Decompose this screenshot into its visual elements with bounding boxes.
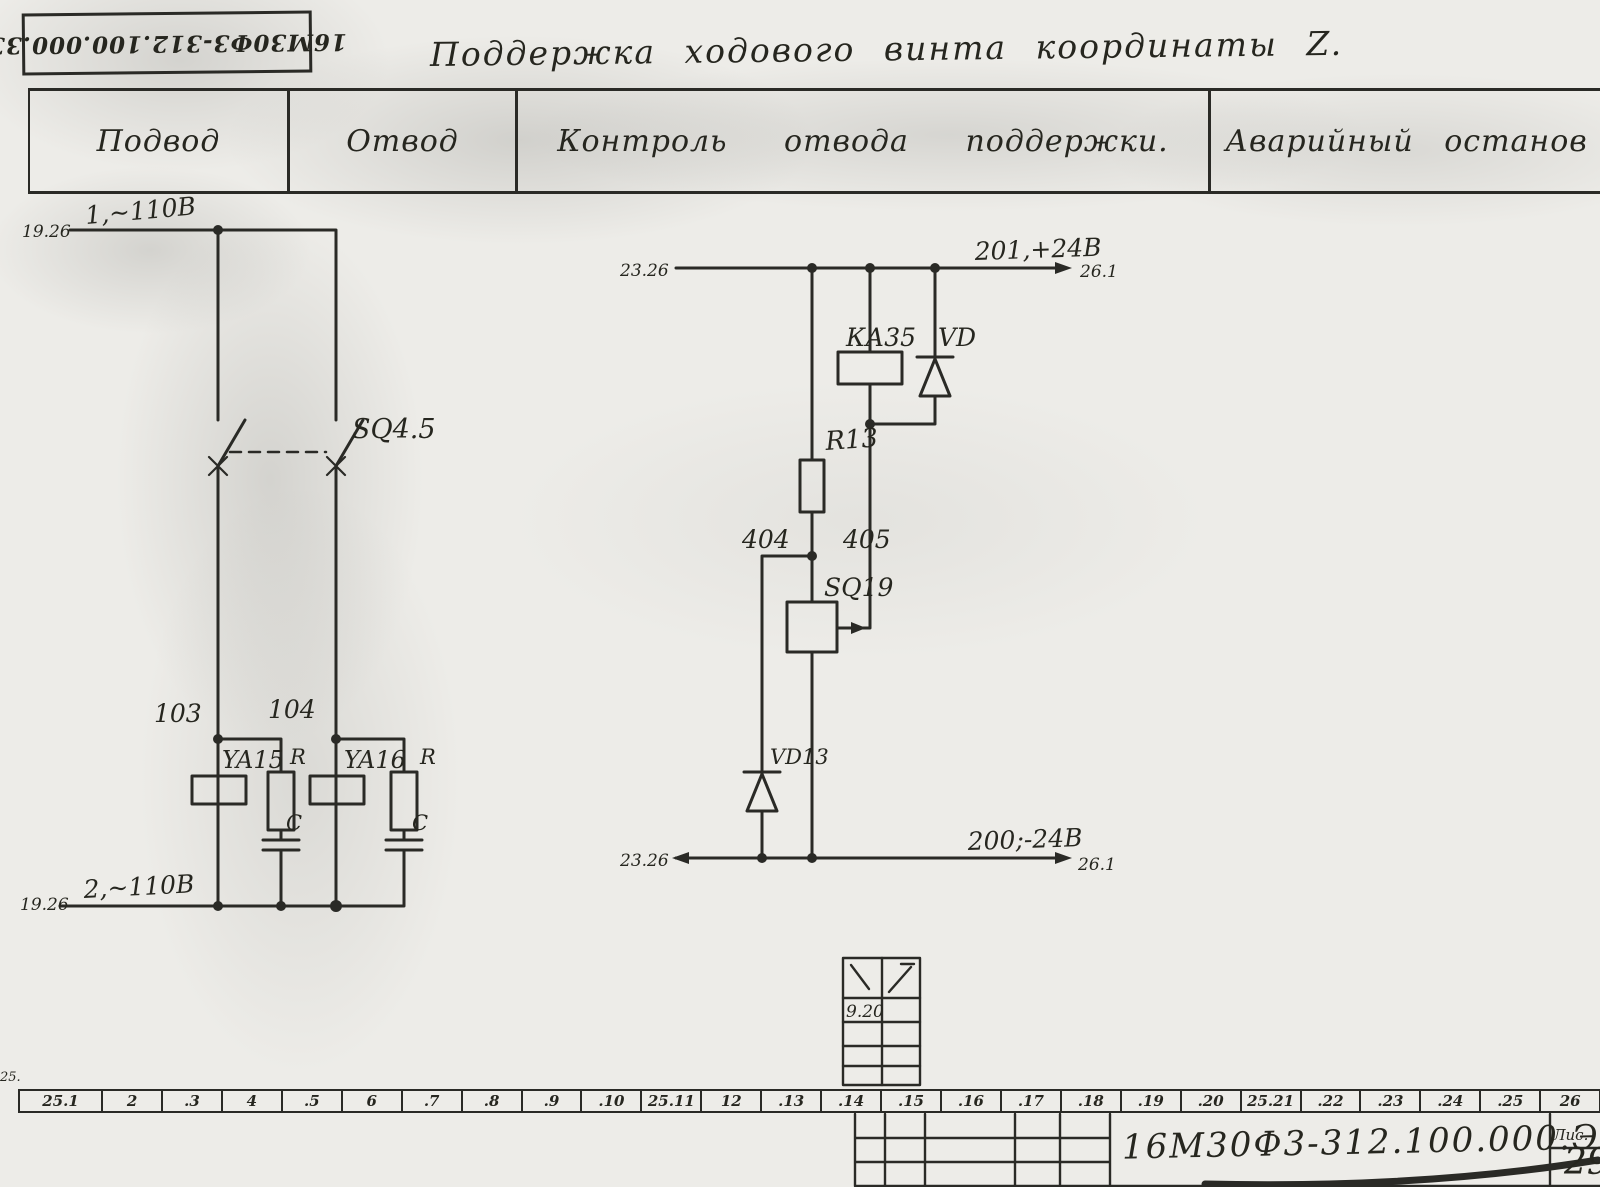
diode-vd-symbol [917,357,953,396]
node-label: 404 [741,525,790,554]
terminal-cell: .14 [822,1091,882,1111]
terminal-strip: 25.1 2 .3 4 .5 6 .7 .8 .9 .10 25.11 12 .… [18,1089,1600,1113]
diode-label: VD13 [770,745,829,769]
left-circuit [60,230,422,906]
arrow-right-icon [851,622,866,634]
sheet-number: 29 [1564,1142,1600,1183]
resistor-label: R13 [823,423,879,457]
ref-label: 19.26 [20,895,69,915]
terminal-cell: .8 [463,1091,523,1111]
wire-label: 200;-24В [966,823,1083,856]
capacitor-label: C [412,811,428,835]
terminal-cell: .17 [1002,1091,1062,1111]
node-label: 103 [154,699,202,728]
terminal-cell: .24 [1421,1091,1481,1111]
terminal-cell: 25.21 [1242,1091,1302,1111]
arrow-right-icon [1055,852,1072,864]
limit-switch-cross-icon [209,457,345,475]
ref-label: 26.1 [1079,262,1118,282]
switch-label: SQ4.5 [352,414,436,445]
arrow-left-icon [672,852,689,864]
terminal-cell: .20 [1182,1091,1242,1111]
terminal-cell: .16 [942,1091,1002,1111]
terminal-cell: 2 [103,1091,163,1111]
ref-label: 19.26 [22,222,71,242]
terminal-cell: 12 [702,1091,762,1111]
schematic-canvas: 19.26 1,~110В SQ4.5 103 104 YA15 R C YA1… [0,0,1600,1187]
ref-label: 23.26 [619,851,669,871]
diode-vd13-symbol [744,772,780,811]
wire-label: 201,+24В [973,233,1102,266]
arrow-up-right-icon [889,964,914,992]
capacitor-a [263,840,299,850]
node-label: 405 [842,525,891,554]
terminal-cell: 26 [1541,1091,1600,1111]
relay-label: КА35 [845,323,916,352]
relay-coil-ka35 [838,352,902,384]
schematic-labels: 19.26 1,~110В SQ4.5 103 104 YA15 R C YA1… [20,191,1118,1022]
terminal-cell: .5 [283,1091,343,1111]
node-label: 104 [268,695,316,724]
terminal-cell: .18 [1062,1091,1122,1111]
coil-label: YA15 [222,746,284,774]
terminal-cell: .9 [523,1091,583,1111]
resistor-label: R [419,745,436,769]
arrow-right-icon [1055,262,1072,274]
terminal-cell: .13 [762,1091,822,1111]
edge-mark: 25. [0,1070,21,1085]
proximity-switch-sq19-box [787,602,837,652]
terminal-cell: 4 [223,1091,283,1111]
resistor-r13 [800,460,824,512]
terminal-cell: .22 [1302,1091,1362,1111]
wire-label: 1,~110В [84,191,197,230]
ref-label: 26.1 [1077,855,1116,875]
terminal-cell: .23 [1361,1091,1421,1111]
arrow-down-right-icon [851,965,869,989]
switch-label: SQ19 [824,573,894,602]
right-circuit [676,268,1066,858]
limit-switch-blades [218,420,363,466]
junction-dots [213,225,940,912]
terminal-cell: .15 [882,1091,942,1111]
capacitor-label: C [286,811,302,835]
terminal-cell: 25.1 [20,1091,103,1111]
terminal-cell: .19 [1122,1091,1182,1111]
terminal-cell: 6 [343,1091,403,1111]
doc-number: 16М30Ф3-312.100.000.Э3 [1122,1120,1473,1167]
ref-label: 23.26 [619,261,669,281]
terminal-cell: .3 [163,1091,223,1111]
diode-label: VD [938,323,976,352]
wire-network-right [676,268,1066,858]
mini-table-value: 9.20 [846,1002,884,1022]
terminal-cell: 25.11 [642,1091,702,1111]
terminal-cell: .25 [1481,1091,1541,1111]
terminal-cell: .10 [582,1091,642,1111]
capacitor-b [386,840,422,850]
terminal-cell: .7 [403,1091,463,1111]
wire-label: 2,~110В [82,869,195,904]
scanned-schematic-sheet: 16М30Ф3-312.100.000.33 Поддержка ходовог… [0,0,1600,1187]
coil-label: YA16 [344,746,406,774]
resistor-label: R [289,745,306,769]
